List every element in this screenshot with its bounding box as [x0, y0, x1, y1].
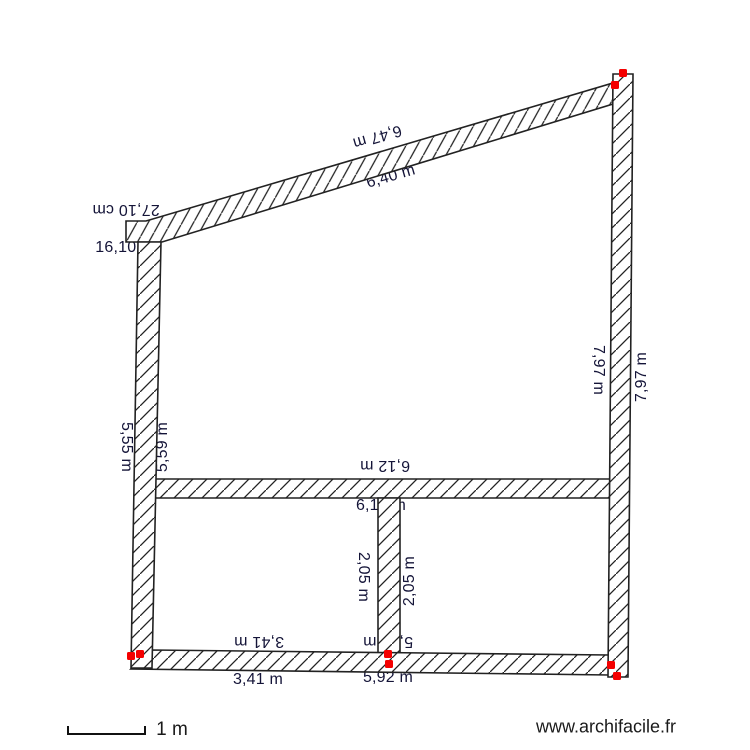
wall-top-sloped[interactable] — [126, 83, 613, 242]
wall-right[interactable] — [608, 74, 633, 677]
scale-bar — [68, 726, 145, 734]
endpoint-handle-bottom-right-inner[interactable] — [607, 661, 615, 669]
floor-plan-page: 6,47 m 6,40 m 27,10 cm 16,10 cm 5,55 m 5… — [0, 0, 750, 750]
floor-plan-canvas — [0, 0, 750, 750]
endpoint-handle-top-right-inner[interactable] — [611, 81, 619, 89]
endpoint-handle-bottom-right-outer[interactable] — [613, 672, 621, 680]
endpoint-handle-partition-bottom-a[interactable] — [384, 650, 392, 658]
wall-left[interactable] — [131, 242, 161, 668]
wall-bottom[interactable] — [131, 650, 609, 675]
watermark-text: www.archifacile.fr — [536, 717, 676, 738]
endpoint-handle-partition-bottom-b[interactable] — [385, 660, 393, 668]
endpoint-handle-bottom-left-a[interactable] — [127, 652, 135, 660]
wall-interior-vertical[interactable] — [378, 498, 400, 653]
wall-interior-horizontal[interactable] — [154, 479, 610, 498]
endpoint-handle-bottom-left-b[interactable] — [136, 650, 144, 658]
endpoint-handle-top-right-outer[interactable] — [619, 69, 627, 77]
scale-label: 1 m — [156, 719, 188, 741]
